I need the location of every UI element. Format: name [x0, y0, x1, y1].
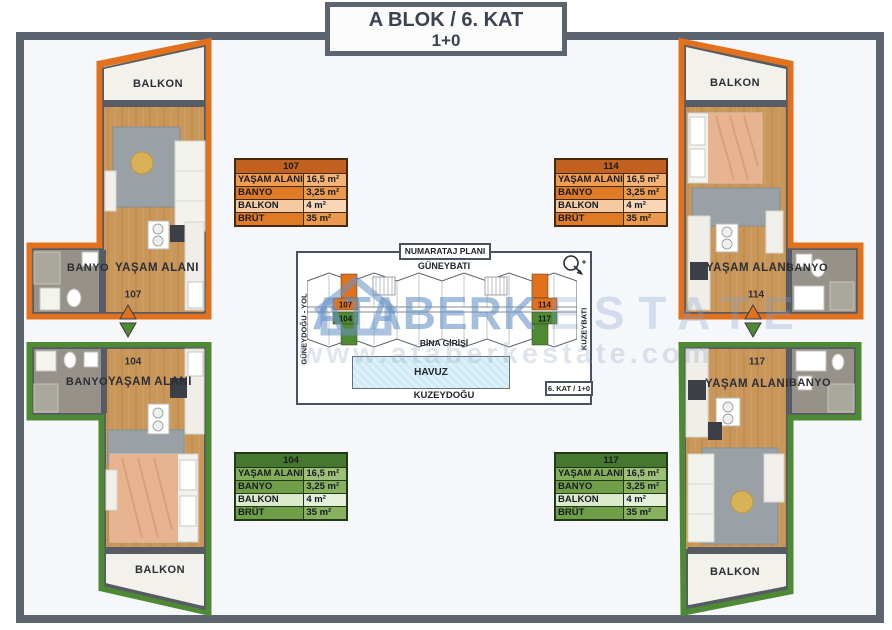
- numbering-plan-title: NUMARATAJ PLANI: [399, 243, 491, 260]
- row-value: 35 m²: [303, 213, 346, 225]
- row-label: BRÜT: [236, 507, 303, 519]
- row-label: BALKON: [556, 494, 623, 506]
- row-label: YAŞAM ALANI: [556, 468, 623, 480]
- row-value: 4 m²: [303, 494, 346, 506]
- row-value: 4 m²: [623, 494, 666, 506]
- building-entrance-label: BİNA GİRİŞİ: [298, 338, 590, 348]
- row-label: BRÜT: [556, 213, 623, 225]
- arrow-up-icon: [745, 305, 761, 319]
- row-label: BALKON: [236, 200, 303, 212]
- unit-114-living-label: YAŞAM ALANI: [706, 262, 790, 274]
- unit-104-number: 104: [125, 357, 142, 368]
- table-117-number: 117: [556, 454, 666, 467]
- plan-unit-114: 114: [538, 301, 551, 310]
- plan-unit-104: 104: [339, 315, 353, 324]
- stairs-icon: [485, 277, 507, 295]
- row-value: 3,25 m²: [623, 187, 666, 199]
- row-value: 3,25 m²: [303, 481, 346, 493]
- unit-107-living-label: YAŞAM ALANI: [115, 262, 199, 274]
- plan-unit-117: 117: [538, 315, 551, 324]
- info-table-114: 114 YAŞAM ALANI16,5 m² BANYO3,25 m² BALK…: [554, 158, 668, 227]
- unit-107-balcony-label: BALKON: [133, 78, 183, 90]
- unit-104-living-label: YAŞAM ALANI: [108, 376, 192, 388]
- unit-104-balcony-label: BALKON: [135, 564, 185, 576]
- row-label: YAŞAM ALANI: [236, 468, 303, 480]
- numbering-plan-panel: GÜNEYBATI GÜNEYDOĞU - YOL KUZEYBATI: [296, 251, 592, 405]
- pool-label: HAVUZ: [414, 367, 448, 378]
- info-table-107: 107 YAŞAM ALANI16,5 m² BANYO3,25 m² BALK…: [234, 158, 348, 227]
- row-label: BANYO: [236, 187, 303, 199]
- entrance-arrows-right: [743, 302, 763, 342]
- row-label: YAŞAM ALANI: [236, 174, 303, 186]
- entrance-arrows-left: [118, 302, 138, 342]
- unit-114-bath-label: BANYO: [786, 262, 828, 274]
- floorplan-unit-107: [22, 36, 232, 322]
- floor-badge: 6. KAT / 1+0: [545, 381, 593, 396]
- arrow-down-icon: [745, 323, 761, 337]
- row-value: 35 m²: [623, 507, 666, 519]
- row-value: 35 m²: [303, 507, 346, 519]
- stairs-icon: [373, 277, 395, 295]
- unit-117-number: 117: [749, 357, 765, 368]
- row-value: 4 m²: [303, 200, 346, 212]
- unit-104-bath-label: BANYO: [66, 376, 108, 388]
- row-label: BANYO: [236, 481, 303, 493]
- row-label: YAŞAM ALANI: [556, 174, 623, 186]
- pool: HAVUZ: [352, 356, 510, 389]
- plan-unit-107: 107: [339, 301, 353, 310]
- table-114-number: 114: [556, 160, 666, 173]
- row-value: 3,25 m²: [623, 481, 666, 493]
- row-value: 4 m²: [623, 200, 666, 212]
- info-table-117: 117 YAŞAM ALANI16,5 m² BANYO3,25 m² BALK…: [554, 452, 668, 521]
- unit-114-balcony-label: BALKON: [710, 77, 760, 89]
- block-floor-title: A BLOK / 6. KAT: [369, 9, 523, 31]
- row-value: 16,5 m²: [623, 468, 666, 480]
- row-label: BRÜT: [236, 213, 303, 225]
- row-label: BANYO: [556, 187, 623, 199]
- unit-117-balcony-label: BALKON: [710, 566, 760, 578]
- row-value: 3,25 m²: [303, 187, 346, 199]
- row-value: 35 m²: [623, 213, 666, 225]
- table-104-number: 104: [236, 454, 346, 467]
- floorplan-unit-114: [658, 36, 870, 322]
- plan-type-subtitle: 1+0: [432, 31, 461, 50]
- row-label: BALKON: [556, 200, 623, 212]
- unit-117-living-label: YAŞAM ALANI: [705, 378, 789, 390]
- unit-107-bath-label: BANYO: [67, 262, 109, 274]
- row-value: 16,5 m²: [623, 174, 666, 186]
- info-table-104: 104 YAŞAM ALANI16,5 m² BANYO3,25 m² BALK…: [234, 452, 348, 521]
- row-label: BANYO: [556, 481, 623, 493]
- unit-114-number: 114: [748, 290, 764, 301]
- page-title: A BLOK / 6. KAT 1+0: [325, 2, 567, 56]
- row-value: 16,5 m²: [303, 468, 346, 480]
- row-label: BALKON: [236, 494, 303, 506]
- table-107-number: 107: [236, 160, 346, 173]
- unit-117-bath-label: BANYO: [789, 377, 831, 389]
- arrow-down-icon: [120, 323, 136, 337]
- unit-107-number: 107: [125, 290, 142, 301]
- row-value: 16,5 m²: [303, 174, 346, 186]
- arrow-up-icon: [120, 305, 136, 319]
- row-label: BRÜT: [556, 507, 623, 519]
- direction-top-label: GÜNEYBATI: [298, 261, 590, 271]
